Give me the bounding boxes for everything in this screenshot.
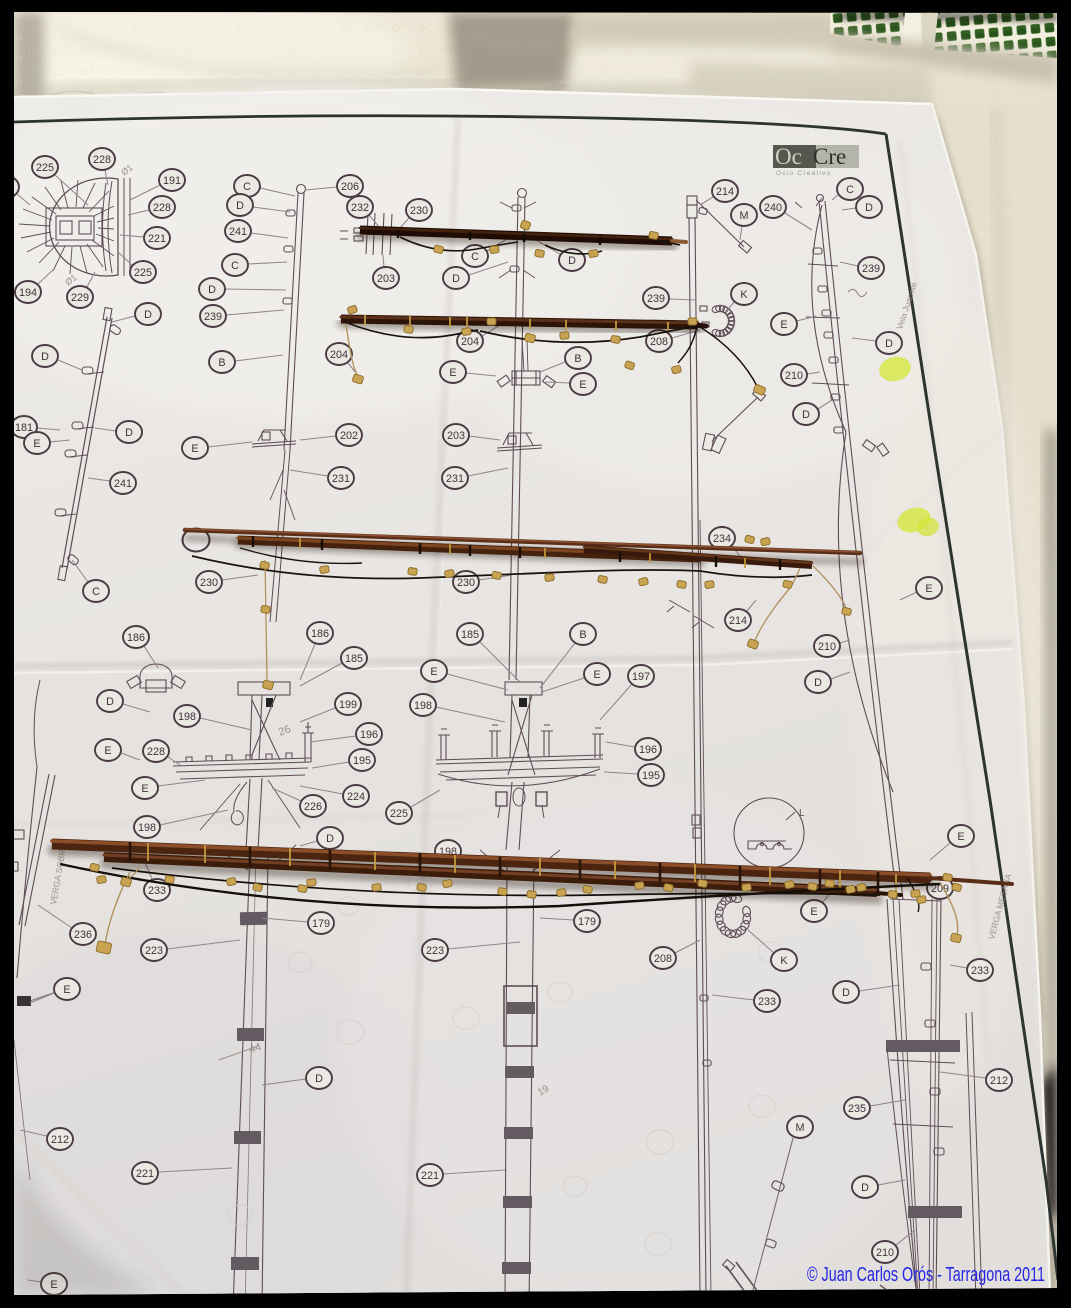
svg-text:208: 208 (654, 953, 672, 965)
svg-text:198: 198 (414, 700, 432, 712)
svg-text:231: 231 (446, 473, 464, 485)
svg-text:E: E (191, 443, 198, 455)
svg-text:225: 225 (390, 808, 408, 820)
svg-text:186: 186 (127, 632, 145, 644)
svg-text:199: 199 (339, 699, 357, 711)
svg-text:E: E (449, 367, 456, 379)
svg-text:212: 212 (51, 1134, 69, 1146)
svg-text:231: 231 (332, 473, 350, 485)
svg-text:E: E (925, 583, 932, 595)
svg-text:D: D (865, 202, 873, 214)
svg-text:223: 223 (145, 945, 163, 957)
svg-text:C: C (243, 181, 251, 193)
svg-text:D: D (861, 1182, 869, 1194)
svg-text:D: D (315, 1073, 323, 1085)
svg-text:© Juan Carlos Orós - Tarragona: © Juan Carlos Orós - Tarragona 2011 (807, 1264, 1045, 1286)
svg-text:230: 230 (410, 205, 428, 217)
svg-text:204: 204 (330, 349, 348, 361)
svg-text:D: D (106, 696, 114, 708)
svg-text:221: 221 (148, 233, 166, 245)
svg-text:M: M (796, 1122, 805, 1134)
svg-text:D: D (568, 255, 576, 267)
svg-text:191: 191 (163, 175, 181, 187)
svg-text:C: C (231, 260, 239, 272)
svg-text:197: 197 (632, 671, 650, 683)
svg-text:224: 224 (347, 791, 365, 803)
svg-text:E: E (780, 319, 787, 331)
svg-text:240: 240 (764, 202, 782, 214)
svg-text:229: 229 (71, 292, 89, 304)
svg-text:230: 230 (200, 577, 218, 589)
svg-text:181: 181 (15, 422, 33, 434)
svg-text:206: 206 (341, 181, 359, 193)
svg-text:241: 241 (229, 226, 247, 238)
svg-text:210: 210 (818, 641, 836, 653)
svg-text:K: K (780, 955, 788, 967)
svg-text:Ocio Creativo: Ocio Creativo (776, 170, 832, 177)
svg-text:D: D (236, 200, 244, 212)
svg-text:185: 185 (461, 629, 479, 641)
svg-text:D: D (802, 409, 810, 421)
svg-text:221: 221 (421, 1170, 439, 1182)
svg-text:L: L (799, 808, 805, 819)
svg-text:C: C (846, 184, 854, 196)
svg-text:179: 179 (312, 918, 330, 930)
svg-text:195: 195 (642, 770, 660, 782)
svg-text:E: E (957, 831, 964, 843)
svg-text:226: 226 (304, 801, 322, 813)
svg-text:M: M (740, 210, 749, 222)
svg-text:D: D (452, 273, 460, 285)
svg-text:D: D (842, 987, 850, 999)
svg-text:225: 225 (36, 162, 54, 174)
svg-text:E: E (810, 906, 817, 918)
svg-text:239: 239 (204, 311, 222, 323)
svg-text:221: 221 (136, 1168, 154, 1180)
svg-text:C: C (471, 251, 479, 263)
svg-text:198: 198 (178, 711, 196, 723)
svg-text:223: 223 (426, 945, 444, 957)
svg-text:210: 210 (876, 1247, 894, 1259)
svg-text:228: 228 (93, 154, 111, 166)
svg-text:195: 195 (353, 755, 371, 767)
svg-text:196: 196 (360, 729, 378, 741)
svg-text:196: 196 (639, 744, 657, 756)
svg-text:203: 203 (447, 430, 465, 442)
svg-text:194: 194 (19, 287, 37, 299)
svg-text:E: E (430, 666, 437, 678)
svg-text:241: 241 (114, 478, 132, 490)
svg-text:C: C (92, 586, 100, 598)
svg-text:233: 233 (971, 965, 989, 977)
svg-text:D: D (885, 338, 893, 350)
svg-text:D: D (208, 284, 216, 296)
svg-text:E: E (33, 438, 40, 450)
svg-text:235: 235 (848, 1103, 866, 1115)
svg-text:Oc: Oc (775, 144, 802, 169)
svg-text:D: D (144, 309, 152, 321)
svg-text:228: 228 (153, 202, 171, 214)
svg-text:214: 214 (729, 615, 747, 627)
svg-text:202: 202 (340, 430, 358, 442)
svg-text:225: 225 (134, 267, 152, 279)
svg-text:212: 212 (990, 1075, 1008, 1087)
svg-text:230: 230 (457, 577, 475, 589)
svg-text:E: E (141, 783, 148, 795)
svg-text:198: 198 (138, 822, 156, 834)
svg-text:204: 204 (461, 336, 479, 348)
svg-text:239: 239 (647, 293, 665, 305)
svg-text:208: 208 (650, 336, 668, 348)
svg-text:228: 228 (147, 746, 165, 758)
svg-text:D: D (125, 427, 133, 439)
svg-text:E: E (579, 379, 586, 391)
svg-text:203: 203 (377, 273, 395, 285)
svg-text:Cre: Cre (813, 144, 846, 169)
svg-text:E: E (104, 745, 111, 757)
svg-text:B: B (218, 357, 225, 369)
svg-text:D: D (41, 351, 49, 363)
svg-text:232: 232 (351, 202, 369, 214)
svg-text:179: 179 (578, 916, 596, 928)
svg-text:B: B (579, 629, 586, 641)
svg-text:D: D (814, 677, 822, 689)
svg-text:K: K (740, 289, 748, 301)
svg-text:E: E (593, 669, 600, 681)
svg-text:239: 239 (862, 263, 880, 275)
svg-text:234: 234 (713, 533, 731, 545)
svg-text:210: 210 (785, 370, 803, 382)
svg-text:185: 185 (345, 653, 363, 665)
svg-text:D: D (326, 833, 334, 845)
svg-text:233: 233 (148, 885, 166, 897)
svg-text:186: 186 (311, 628, 329, 640)
svg-text:236: 236 (74, 929, 92, 941)
svg-text:214: 214 (716, 186, 734, 198)
svg-text:B: B (574, 353, 581, 365)
svg-text:233: 233 (758, 996, 776, 1008)
svg-text:E: E (63, 984, 70, 996)
